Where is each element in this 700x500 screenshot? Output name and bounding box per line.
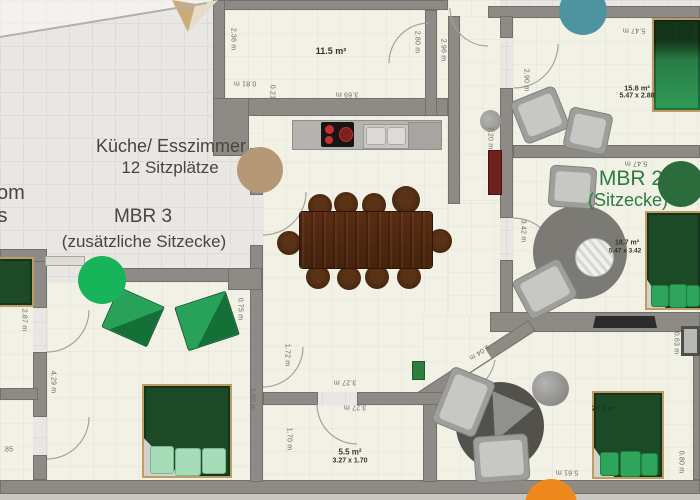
wall-g-left-2 <box>33 352 47 417</box>
dimension-label: 7.20 m <box>487 127 494 150</box>
round-table <box>575 238 614 277</box>
left-edge-partial-text-2: ls <box>0 205 7 228</box>
dining-chair <box>397 265 421 289</box>
marker-tan-circle[interactable] <box>237 147 283 193</box>
dimension-label: 2.96 m <box>440 39 447 62</box>
floor-left-sliver-bottom <box>0 400 33 480</box>
bed-top-right <box>652 18 700 112</box>
bed-bottom-left <box>142 384 232 478</box>
bed-pillow <box>669 284 687 308</box>
bottom-shadow <box>0 494 700 500</box>
dimension-label: 5.61 m <box>556 469 579 476</box>
left-edge-partial-text-1: om <box>0 182 25 205</box>
armchair-cushion <box>554 171 591 203</box>
room-size-label: 3.27 x 1.70 <box>332 458 367 465</box>
dimension-label: 0.81 m <box>234 80 257 87</box>
dimension-label: 2.80 m <box>414 31 421 54</box>
dimension-label: 0.63 m <box>673 332 680 355</box>
dining-chair <box>392 186 420 214</box>
wall-g-top-corner <box>228 268 262 290</box>
dimension-label: 2.90 m <box>523 69 530 92</box>
marker-green-circle[interactable] <box>78 256 126 304</box>
dimension-label: 5.47 m <box>623 27 646 34</box>
corner-window-glass <box>684 329 697 353</box>
bed-pillow <box>686 285 700 307</box>
room-size-label: 5.47 x 2.88 <box>619 93 654 100</box>
mbr3-annotation-line2: (zusätzliche Sitzecke) <box>62 232 226 252</box>
wall-g-left-3 <box>33 455 47 480</box>
dimension-label: 3.27 m <box>344 404 367 411</box>
wall-corridor-right-3 <box>500 260 513 315</box>
wall-bottom <box>0 480 700 494</box>
bed-pillow <box>651 285 669 307</box>
bed-pillow <box>657 23 674 39</box>
dimension-label: 0.80 m <box>678 451 685 474</box>
dimension-label: .85 <box>3 447 13 454</box>
floor-plan-canvas: 2.36 m 0.81 m 0.21 3.69 m 2.80 m 2.96 m … <box>0 0 700 500</box>
mbr2-annotation-line2: (Sitzecke) <box>588 190 668 211</box>
wall-e-top-left <box>263 392 318 405</box>
bed-pillow <box>150 446 174 474</box>
dining-chair <box>277 231 301 255</box>
bed-left-sliver <box>0 257 34 307</box>
wall-corridor-right-1 <box>500 16 513 38</box>
dimension-label: 0.75 m <box>237 298 244 321</box>
dimension-label: 0.21 <box>269 85 276 99</box>
dimension-label: 1.72 m <box>284 344 291 367</box>
cooktop-burner <box>325 136 333 144</box>
wall-top-room-bottom <box>222 98 448 116</box>
dining-chair <box>365 265 389 289</box>
bed-pillow <box>641 453 658 476</box>
sink-basin <box>387 127 406 145</box>
radiator-green <box>412 361 425 380</box>
room-area-label: 20.4 m² <box>592 406 616 413</box>
marker-dark-green-circle[interactable] <box>658 161 700 207</box>
dimension-label: 2.36 m <box>230 28 237 51</box>
bed-pillow <box>202 448 226 474</box>
radiator-red <box>488 150 502 195</box>
sink-basin <box>366 127 386 145</box>
dimension-label: 1.70 m <box>286 428 293 451</box>
bed-pillow <box>677 23 694 39</box>
dining-table <box>300 212 432 268</box>
dimension-label: 2.87 m <box>21 309 28 332</box>
kitchen-annotation-line1: Küche/ Esszimmer <box>96 136 246 157</box>
wall-top-a <box>213 0 448 10</box>
wall-top-room-right <box>425 10 437 116</box>
room-area-label: 5.5 m² <box>338 448 361 457</box>
armchair-cushion <box>517 92 563 137</box>
counter-right-section <box>408 122 442 150</box>
dimension-label: 3.69 m <box>336 91 359 98</box>
wall-g-right <box>250 283 263 482</box>
bed-pillow <box>175 448 201 476</box>
wall-sliver-divider <box>0 388 38 400</box>
dimension-label: 3.42 m <box>520 220 527 243</box>
bed-pillow <box>620 451 641 477</box>
cooktop-burner <box>339 127 353 142</box>
dimension-label: 5.47 m <box>625 160 648 167</box>
armchair <box>472 433 530 484</box>
ottoman-stone <box>532 371 569 406</box>
armchair-cushion <box>569 113 607 149</box>
dimension-label: 3.60 m <box>249 388 256 411</box>
dining-chair <box>306 265 330 289</box>
tv <box>593 316 657 328</box>
armchair-cushion <box>479 440 524 478</box>
bed-bottom-right <box>592 391 664 479</box>
dimension-label: 3.27 m <box>334 379 357 386</box>
cooktop-burner <box>325 125 334 134</box>
room-area-label: 18.7 m² <box>615 240 639 247</box>
room-area-label: 15.8 m² <box>624 84 650 93</box>
room-size-label: 5.47 x 3.42 <box>609 248 642 255</box>
armchair <box>562 106 614 156</box>
dimension-label: 4.29 m <box>50 371 57 394</box>
kitchen-annotation-line2: 12 Sitzplätze <box>121 158 218 178</box>
mbr3-annotation-line1: MBR 3 <box>114 206 172 228</box>
wall-vestibule-left <box>448 16 460 204</box>
bed-pillow <box>600 452 619 476</box>
mbr2-annotation-line1: MBR 2 <box>599 167 663 191</box>
room-area-label: 11.5 m² <box>316 46 347 56</box>
dining-chair <box>337 266 361 290</box>
bed-mbr2 <box>645 211 700 310</box>
window-sliver <box>45 256 85 266</box>
